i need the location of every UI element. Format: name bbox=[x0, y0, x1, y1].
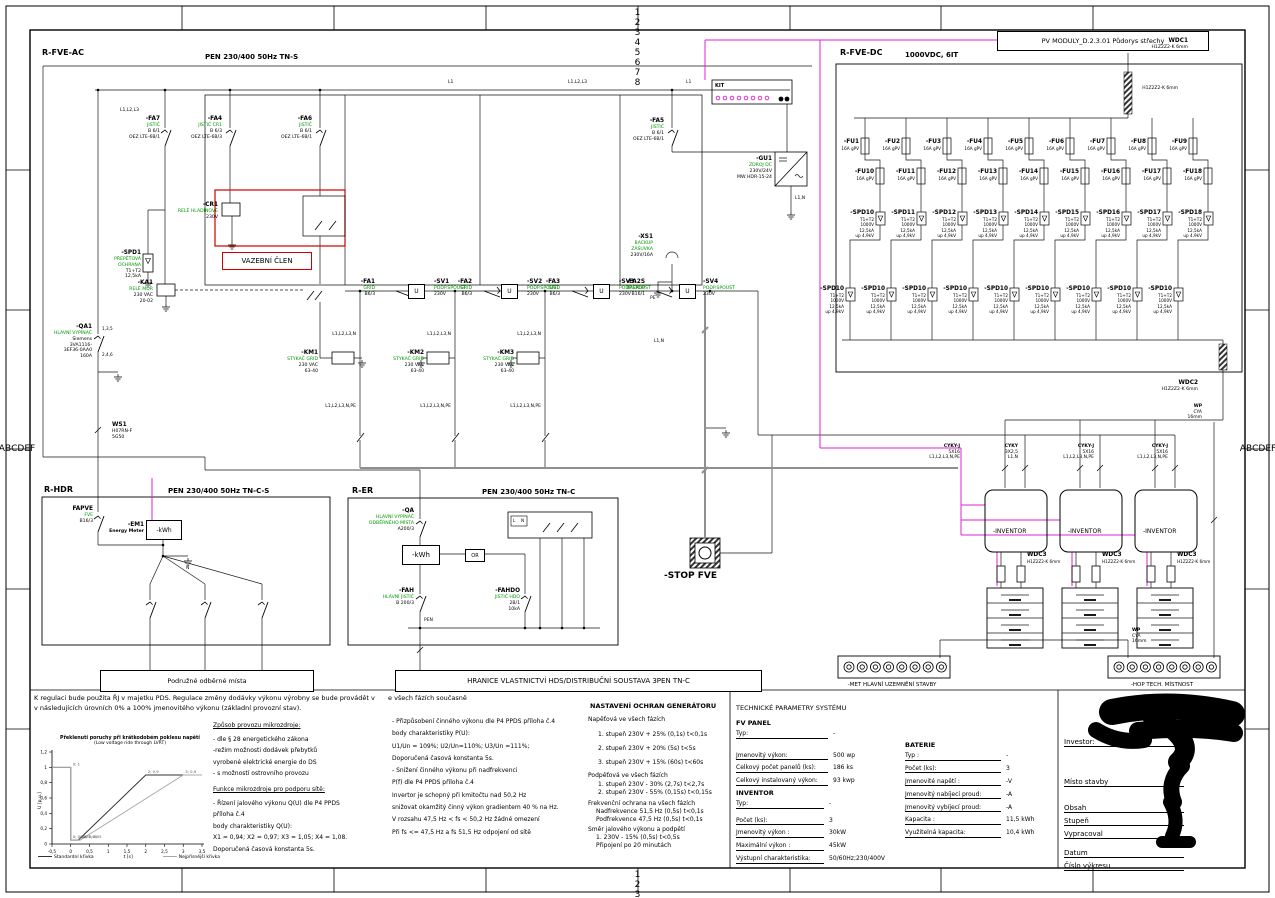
wire-label: L1,L2,L3,N,PE bbox=[493, 404, 541, 410]
cable-group-4: CYKY-J5X16L1,L2,L3,N,PE bbox=[1120, 444, 1168, 461]
table-row: Maximální výkon :45kW bbox=[736, 842, 916, 851]
kit-label: KIT bbox=[715, 83, 724, 89]
gen-item: Nadfrekvence 51,5 Hz (0,5s) t<0,1s bbox=[596, 808, 704, 816]
column-number: 3 bbox=[30, 890, 1245, 898]
support-item: Doporučená časová konstanta 5s. bbox=[213, 844, 347, 855]
title-block-row: Číslo výkresu bbox=[1064, 862, 1184, 871]
spd-label: -SPD10T1+T21000V12,5kAup 4,9kV bbox=[818, 286, 844, 314]
svg-text:0,2: 0,2 bbox=[40, 826, 47, 831]
gen-item: 1. stupeň 230V + 25% (0,1s) t<0,1s bbox=[598, 728, 707, 742]
dc-panel-title: R-FVE-DC bbox=[840, 48, 882, 58]
support-item: - Řízení jalového výkonu Q(U) dle P4 PPD… bbox=[213, 798, 347, 809]
table-row: Počet (ks):3 bbox=[736, 817, 916, 826]
er-panel-title: R-ER bbox=[352, 486, 373, 496]
legend-item: Nejpřísnější křivka bbox=[163, 855, 220, 860]
vazebni-clen-box: VAZEBNÍ ČLEN bbox=[222, 252, 312, 270]
svg-text:2; 0,9: 2; 0,9 bbox=[148, 769, 160, 774]
fuse-label: -FU1616A gPV bbox=[1094, 169, 1120, 181]
comp-fa2: -FA2GRIDB6/3 bbox=[427, 279, 472, 298]
gen-s4: Směr jalového výkonu a podpětí bbox=[588, 826, 685, 834]
table-row: Typ:- bbox=[736, 730, 916, 739]
comp-fa4: -FA4JISTIČ CR1 B 6/3OEZ LTE-6B/3 bbox=[162, 116, 222, 140]
power-item: - Přizpůsobení činného výkonu dle P4 PPD… bbox=[392, 716, 559, 728]
grey-wires bbox=[360, 291, 958, 538]
power-item: Invertor je schopný při kmitočtu nad 50,… bbox=[392, 790, 559, 802]
cable-group-2: CYKY3X2,5L1,N bbox=[976, 444, 1018, 461]
mode-item: -režim možnosti dodávek přebytků bbox=[213, 745, 317, 756]
gen-item: 2. stupeň 230V - 55% (0,15s) t<0,15s bbox=[598, 789, 712, 797]
dc-system-label: 1000VDC, 6IT bbox=[905, 51, 958, 60]
wire-label: L1 bbox=[686, 80, 691, 86]
cable-group-1: CYKY-J5X16L1,L2,L3,N,PE bbox=[908, 444, 960, 461]
comp-fa1: -FA1GRIDB6/3 bbox=[330, 279, 375, 298]
power-item: Při fs <= 47,5 Hz a fs 51,5 Hz odpojení … bbox=[392, 827, 559, 839]
power-items: - Přizpůsobení činného výkonu dle P4 PPD… bbox=[392, 716, 559, 839]
wdc3-label: WDC3H1Z2Z2-K 6mm bbox=[1102, 552, 1135, 564]
comp-fapve: FAPVEFVEB16/3 bbox=[48, 506, 93, 525]
comp-fah: -FAHHLAVNÍ JISTIČB 200/3 bbox=[352, 588, 414, 607]
gen-s2-items: 1. stupeň 230V - 30% (2,7s) t<2,7s2. stu… bbox=[598, 781, 712, 798]
hdo-l-label: L bbox=[513, 518, 515, 523]
breaker-symbols bbox=[94, 130, 1217, 653]
spd-label: -SPD14T1+T21000V12,5kAup 4,9kV bbox=[1012, 210, 1038, 238]
mode-heading: Způsob provozu mikrozdroje: bbox=[213, 722, 300, 730]
title-block-row: Obsah bbox=[1064, 804, 1184, 813]
svg-text:0; 0,05: 0; 0,05 bbox=[73, 834, 87, 839]
power-item: V rozsahu 47,5 Hz < fs < 50,2 Hz žádné o… bbox=[392, 814, 559, 826]
gen-s4-items: 1. 230V - 15% (0,5s) t<0,5sPřipojení po … bbox=[596, 834, 680, 851]
row-letters-left: ABCDEF bbox=[6, 30, 28, 868]
spd-label: -SPD10T1+T21000V12,5kAup 4,9kV bbox=[859, 286, 885, 314]
wdc2-label: WDC2H1Z2Z2-K 6mm bbox=[1138, 380, 1198, 393]
pin-label: 1,3,5 bbox=[102, 326, 113, 331]
inverter-label: -INVENTOR bbox=[1068, 528, 1101, 536]
table-row: Jmenovitý výkon:500 wp bbox=[736, 752, 916, 761]
comp-km3: -KM3STYKAČ GRID 230 VAC63-40 bbox=[458, 350, 514, 374]
support-heading: Funkce mikrozdroje pro podporu sítě: bbox=[213, 786, 325, 794]
fv-table: Typ:- Jmenovitý výkon:500 wp Celkový poč… bbox=[736, 730, 916, 790]
table-row: Typ:- bbox=[736, 800, 916, 809]
fuse-label: -FU1516A gPV bbox=[1053, 169, 1079, 181]
row-letter: D bbox=[17, 444, 24, 454]
fuse-label: -FU1316A gPV bbox=[971, 169, 997, 181]
column-numbers-top: 12345678 bbox=[30, 8, 1245, 28]
comp-km1: -KM1STYKAČ GRID 230 VAC63-40 bbox=[262, 350, 318, 374]
spd-label: -SPD16T1+T21000V12,5kAup 4,9kV bbox=[1094, 210, 1120, 238]
wdc1-label: WDC1H1Z2Z2-K 6mm bbox=[1128, 38, 1188, 51]
gen-s2: Podpěťová ve všech fázích bbox=[588, 772, 668, 780]
sv4-u-box: U bbox=[679, 284, 696, 299]
comp-gu1: -GU1ZDROJ DC 230V/24VMW HDR-15-24 bbox=[716, 156, 772, 180]
comp-spd1: -SPD1PŘEPĚŤOVÁ OCHRANAT1+T212,5kA bbox=[86, 250, 141, 280]
regulation-note-1: K regulaci bude použita ŘJ v majetku PDS… bbox=[34, 694, 375, 702]
comp-ka1: -KA1RELÉ MDR 230 VAC20-02 bbox=[98, 280, 153, 304]
fuse-label: -FU416A gPV bbox=[956, 139, 982, 151]
podruzna-box: Podružné odběrné místa bbox=[100, 670, 314, 692]
wire-label: L1,L2,L3 bbox=[568, 80, 587, 86]
svg-text:0,4: 0,4 bbox=[40, 811, 47, 816]
hop-bar-label: -HOP TECH. MÍSTNOST bbox=[1106, 682, 1218, 689]
gen-item: Podfrekvence 47,5 Hz (0,5s) t<0,1s bbox=[596, 816, 704, 824]
stop-button-frame bbox=[690, 538, 720, 568]
column-number: 7 bbox=[30, 68, 1245, 78]
spd-label: -SPD15T1+T21000V12,5kAup 4,9kV bbox=[1053, 210, 1079, 238]
table-row: Jmenovitý výkon :30kW bbox=[736, 829, 916, 838]
cable-group-3: CYKY-J5X16L1,L2,L3,N,PE bbox=[1046, 444, 1094, 461]
spd-label: -SPD10T1+T21000V12,5kAup 4,9kV bbox=[982, 286, 1008, 314]
comp-xs1: -XS1BACKUP ZÁSUVKA230V/16A bbox=[608, 234, 653, 258]
column-number: 2 bbox=[30, 18, 1245, 28]
wire-label: PEN bbox=[424, 618, 433, 624]
wire-label: N bbox=[186, 566, 189, 572]
met-bar-label: -MET HLAVNÍ UZEMNĚNÍ STAVBY bbox=[836, 682, 948, 689]
svg-text:0,5: 0,5 bbox=[86, 849, 93, 854]
chart-ylabel: U [p.u.] bbox=[38, 792, 43, 809]
title-block-row: Stupeň bbox=[1064, 817, 1184, 826]
ac-panel-title: R-FVE-AC bbox=[42, 48, 84, 58]
wire-label: L1,L2,L3 bbox=[120, 108, 139, 114]
power-item: P(f) dle P4 PPDS příloha č.4 bbox=[392, 777, 559, 789]
lvrt-chart: Překlenutí poruchy při krátkodobém pokle… bbox=[36, 736, 224, 860]
generator-title: NASTAVENÍ OCHRAN GENERÁTORU bbox=[590, 702, 716, 710]
inventor-heading: INVENTOR bbox=[736, 789, 774, 797]
wire-label: L1,L2,L3,N,PE bbox=[403, 404, 451, 410]
spd-label: -SPD10T1+T21000V12,5kAup 4,9kV bbox=[1146, 286, 1172, 314]
column-number: 2 bbox=[30, 880, 1245, 890]
comp-fa5: -FA5JISTIČ B 6/1OEZ LTE-6B/1 bbox=[604, 118, 664, 142]
gen-s3: Frekvenční ochrana na všech fázích bbox=[588, 800, 695, 808]
spd-label: -SPD12T1+T21000V12,5kAup 4,9kV bbox=[930, 210, 956, 238]
svg-text:1,5: 1,5 bbox=[124, 849, 131, 854]
spd-label: -SPD18T1+T21000V12,5kAup 4,9kV bbox=[1176, 210, 1202, 238]
fv-heading: FV PANEL bbox=[736, 719, 771, 727]
table-row: Jmenovitý nabíjecí proud:-A bbox=[905, 791, 1055, 800]
fuse-label: -FU1016A gPV bbox=[848, 169, 874, 181]
wire-label: L1,N bbox=[795, 196, 805, 202]
spd-label: -SPD10T1+T21000V12,5kAup 4,9kV bbox=[848, 210, 874, 238]
chart-subtitle: (Low voltage ride through LVRT) bbox=[36, 741, 224, 746]
gen-item: 2. stupeň 230V + 20% (5s) t<5s bbox=[598, 742, 707, 756]
spd-label: -SPD10T1+T21000V12,5kAup 4,9kV bbox=[941, 286, 967, 314]
ac-system-label: PEN 230/400 50Hz TN-S bbox=[205, 53, 298, 62]
title-block-row: Investor: bbox=[1064, 738, 1184, 747]
hranice-box: HRANICE VLASTNICTVÍ HDS/DISTRIBUČNÍ SOUS… bbox=[395, 670, 762, 692]
inverter-label: -INVENTOR bbox=[993, 528, 1026, 536]
gen-s1-items: 1. stupeň 230V + 25% (0,1s) t<0,1s2. stu… bbox=[598, 728, 707, 769]
support-item: body charakteristiky Q(U): bbox=[213, 821, 347, 832]
chart-plot: -0,500,511,522,533,500,20,40,60,811,20; … bbox=[36, 746, 218, 856]
column-number: 1 bbox=[30, 870, 1245, 880]
svg-text:3,5: 3,5 bbox=[199, 849, 206, 854]
svg-text:1: 1 bbox=[107, 849, 110, 854]
table-row: Jmenovité napětí :-V bbox=[905, 778, 1055, 787]
row-letter: D bbox=[1258, 444, 1265, 454]
table-row: Celkový instalovaný výkon:93 kwp bbox=[736, 777, 916, 786]
comp-sv4: -SV4PODP.SPOUŠŤ230V bbox=[703, 279, 743, 298]
wire-label: L1,L2,L3,N bbox=[493, 332, 541, 338]
fuse-label: -FU116A gPV bbox=[833, 139, 859, 151]
chart-legend: Standardní křivkat [s]Nejpřísnější křivk… bbox=[38, 855, 220, 860]
baterie-table: Typ :- Počet (ks):3 Jmenovité napětí :-V… bbox=[905, 752, 1055, 842]
comp-fa3: -FA3GRIDB6/3 bbox=[515, 279, 560, 298]
table-row: Počet (ks):3 bbox=[905, 765, 1055, 774]
wdc3-label: WDC3H1Z2Z2-K 6mm bbox=[1177, 552, 1210, 564]
wire-label: L1,L2,L3,N bbox=[403, 332, 451, 338]
mode-item: - dle § 28 energetického zákona bbox=[213, 734, 317, 745]
fuse-label: -FU1816A gPV bbox=[1176, 169, 1202, 181]
hdo-n-label: N bbox=[521, 518, 524, 523]
table-row: Kapacita :11,5 kWh bbox=[905, 816, 1055, 825]
spd-label: -SPD17T1+T21000V12,5kAup 4,9kV bbox=[1135, 210, 1161, 238]
power-item: body charakteristiky P(U): bbox=[392, 728, 559, 740]
gen-item: 1. stupeň 230V - 30% (2,7s) t<2,7s bbox=[598, 781, 712, 789]
legend-item: Standardní křivka bbox=[38, 855, 94, 860]
support-item: příloha č.4 bbox=[213, 809, 347, 820]
column-number: 1 bbox=[30, 8, 1245, 18]
comp-fahdo: -FAHDOJISTIČ HDO 2B/110kA bbox=[462, 588, 520, 612]
spd-label: -SPD13T1+T21000V12,5kAup 4,9kV bbox=[971, 210, 997, 238]
inverter-label: -INVENTOR bbox=[1143, 528, 1176, 536]
column-numbers-bottom: 12345678 bbox=[30, 870, 1245, 890]
comp-qa1: -QA1HLAVNÍ VYPÍNAČ Siemens3VA1116-3EF36-… bbox=[40, 324, 92, 360]
title-block-row: Vypracoval bbox=[1064, 830, 1184, 839]
comp-ws1: WS1H07RN-F5G50 bbox=[112, 422, 152, 441]
regulation-note-2: v následujících úrovních 0% a 100% jmeno… bbox=[34, 704, 301, 712]
er-system-label: PEN 230/400 50Hz TN-C bbox=[482, 488, 575, 497]
wire-label: L1,L2,L3,N bbox=[308, 332, 356, 338]
spd-label: -SPD10T1+T21000V12,5kAup 4,9kV bbox=[900, 286, 926, 314]
comp-cr1: -CR1RELÉ HLADINOVÉ 230V bbox=[176, 202, 218, 221]
spd-label: -SPD11T1+T21000V12,5kAup 4,9kV bbox=[889, 210, 915, 238]
gen-s1: Napěťová ve všech fázích bbox=[588, 716, 665, 724]
svg-text:2,5: 2,5 bbox=[161, 849, 168, 854]
svg-text:1,2: 1,2 bbox=[40, 750, 47, 755]
fuse-label: -FU1416A gPV bbox=[1012, 169, 1038, 181]
black-wires bbox=[43, 53, 1223, 672]
wire-label: L1,N bbox=[630, 339, 664, 345]
wdc3-label: WDC3H1Z2Z2-K 6mm bbox=[1027, 552, 1060, 564]
gen-item: 3. stupeň 230V + 15% (60s) t<60s bbox=[598, 756, 707, 770]
pin-label: 2,4,6 bbox=[102, 352, 113, 357]
hdr-panel-title: R-HDR bbox=[44, 485, 73, 495]
fuse-label: -FU816A gPV bbox=[1120, 139, 1146, 151]
title-block-row: Místo stavby bbox=[1064, 778, 1184, 787]
row-letter: F bbox=[30, 444, 35, 454]
row-letter: F bbox=[1271, 444, 1275, 454]
sv1-u-box: U bbox=[408, 284, 425, 299]
inventor-table: Typ:- Počet (ks):3 Jmenovitý výkon :30kW… bbox=[736, 800, 916, 868]
column-number: 8 bbox=[30, 78, 1245, 88]
cr1-red-box bbox=[215, 190, 345, 246]
svg-text:0; 1: 0; 1 bbox=[73, 761, 81, 766]
svg-text:0,2; 0,05: 0,2; 0,05 bbox=[80, 834, 98, 839]
gen-s3-items: Nadfrekvence 51,5 Hz (0,5s) t<0,1sPodfre… bbox=[596, 808, 704, 825]
wp-label-2: WPCYA16mm bbox=[1132, 628, 1147, 645]
spd-label: -SPD10T1+T21000V12,5kAup 4,9kV bbox=[1105, 286, 1131, 314]
svg-text:1: 1 bbox=[44, 765, 47, 770]
comp-km2: -KM2STYKAČ GRID 230 VAC63-40 bbox=[368, 350, 424, 374]
wire-label: L1 bbox=[448, 80, 453, 86]
mode-items: - dle § 28 energetického zákona-režim mo… bbox=[213, 734, 317, 780]
hdr-kwh-box: -kWh bbox=[146, 520, 182, 540]
er-kwh-box: -kWh bbox=[402, 545, 440, 565]
hdr-system-label: PEN 230/400 50Hz TN-C-S bbox=[168, 487, 269, 496]
svg-text:0: 0 bbox=[69, 849, 72, 854]
regulation-note-cont: e všech fázích současně bbox=[388, 694, 467, 702]
svg-text:3; 0,9: 3; 0,9 bbox=[185, 769, 197, 774]
fuse-label: -FU1216A gPV bbox=[930, 169, 956, 181]
support-item: X1 = 0,94; X2 = 0,97; X3 = 1,05; X4 = 1,… bbox=[213, 832, 347, 843]
fuse-label: -FU216A gPV bbox=[874, 139, 900, 151]
fuse-label: -FU716A gPV bbox=[1079, 139, 1105, 151]
svg-text:2: 2 bbox=[144, 849, 147, 854]
table-row: Jmenovitý vybíjecí proud:-A bbox=[905, 804, 1055, 813]
wire-label: PE bbox=[650, 296, 656, 302]
dc-cable-label: H1Z2Z2-K 6mm bbox=[1118, 86, 1178, 92]
support-items: - Řízení jalového výkonu Q(U) dle P4 PPD… bbox=[213, 798, 347, 855]
svg-text:-0,5: -0,5 bbox=[48, 849, 57, 854]
column-number: 4 bbox=[30, 38, 1245, 48]
or-box: OR bbox=[465, 549, 485, 562]
title-block-row: Datum bbox=[1064, 849, 1184, 858]
comp-fa2s: -FA2SBACKUPB16/1 bbox=[600, 279, 645, 298]
fuse-label: -FU316A gPV bbox=[915, 139, 941, 151]
baterie-heading: BATERIE bbox=[905, 741, 935, 749]
wp-label: WPCYA16mm bbox=[1162, 404, 1202, 421]
fuse-label: -FU1116A gPV bbox=[889, 169, 915, 181]
fuse-label: -FU616A gPV bbox=[1038, 139, 1064, 151]
comp-qa: -QAHLAVNÍ VYPÍNAČ ODBĚRNÉHO MÍSTAA200/3 bbox=[352, 508, 414, 532]
fuse-label: -FU916A gPV bbox=[1161, 139, 1187, 151]
comp-fa7: -FA7JISTIČ B 6/1OEZ LTE-6B/1 bbox=[100, 116, 160, 140]
row-letters-right: ABCDEF bbox=[1247, 30, 1269, 868]
power-item: U1/Un = 109%; U2/Un=110%; U3/Un =111%; bbox=[392, 741, 559, 753]
wire-label: L1,L2,L3,N,PE bbox=[308, 404, 356, 410]
fuse-label: -FU1716A gPV bbox=[1135, 169, 1161, 181]
schematic-sheet: 12345678 12345678 ABCDEF ABCDEF R-FVE-AC… bbox=[0, 0, 1275, 898]
svg-text:0,8: 0,8 bbox=[40, 780, 47, 785]
comp-fa6: -FA6JISTIČ B 6/1OEZ LTE-6B/1 bbox=[252, 116, 312, 140]
mode-item: - s možností ostrovního provozu bbox=[213, 768, 317, 779]
chart-xlabel: t [s] bbox=[124, 855, 133, 860]
tech-title: TECHNICKÉ PARAMETRY SYSTÉMU bbox=[736, 704, 846, 712]
gen-item: 1. 230V - 15% (0,5s) t<0,5s bbox=[596, 834, 680, 842]
svg-text:0,25; 0,05: 0,25; 0,05 bbox=[82, 834, 102, 839]
spd-label: -SPD10T1+T21000V12,5kAup 4,9kV bbox=[1064, 286, 1090, 314]
power-item: - Snížení činného výkonu při nadfrekvenc… bbox=[392, 765, 559, 777]
fuse-label: -FU516A gPV bbox=[997, 139, 1023, 151]
svg-text:3: 3 bbox=[182, 849, 185, 854]
table-row: Využitelná kapacita:10,4 kWh bbox=[905, 829, 1055, 838]
svg-text:0: 0 bbox=[44, 842, 47, 847]
column-number: 3 bbox=[30, 28, 1245, 38]
component-shapes bbox=[42, 64, 1242, 645]
stop-fve-label: -STOP FVE bbox=[664, 571, 717, 582]
spd-label: -SPD10T1+T21000V12,5kAup 4,9kV bbox=[1023, 286, 1049, 314]
mode-item: vyrobené elektrické energie do DS bbox=[213, 757, 317, 768]
table-row: Celkový počet panelů (ks):186 ks bbox=[736, 764, 916, 773]
gen-item: Připojení po 20 minutách bbox=[596, 842, 680, 850]
comp-em1: -EM1Energy Meter bbox=[104, 522, 144, 535]
power-item: snižovat okamžitý činný výkon gradientem… bbox=[392, 802, 559, 814]
power-item: Doporučená časová konstanta 5s. bbox=[392, 753, 559, 765]
table-row: Výstupní charakteristika:50/60Hz;230/400… bbox=[736, 855, 916, 864]
table-row: Typ :- bbox=[905, 752, 1055, 761]
